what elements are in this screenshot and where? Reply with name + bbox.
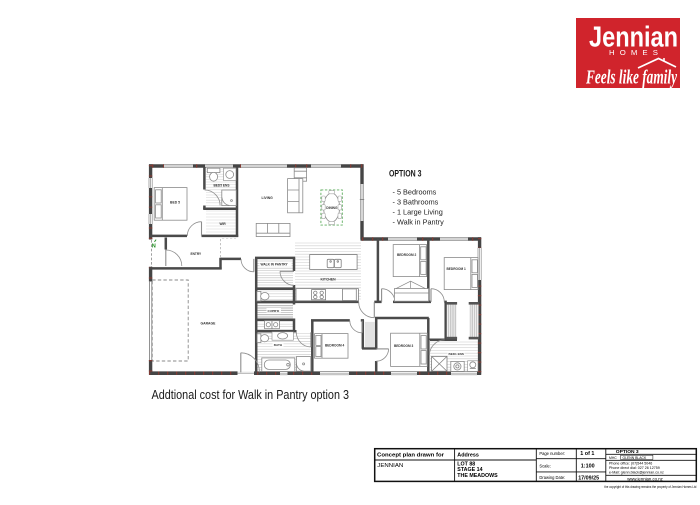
svg-text:- 1 Large Living: - 1 Large Living: [393, 208, 443, 217]
svg-text:www.jennian.co.nz: www.jennian.co.nz: [627, 476, 663, 481]
svg-text:- 5 Bedrooms: - 5 Bedrooms: [393, 188, 437, 197]
svg-text:Feels like family: Feels like family: [585, 67, 677, 89]
svg-text:JENNIAN: JENNIAN: [377, 463, 403, 469]
svg-text:BEDROOM 1: BEDROOM 1: [447, 267, 467, 271]
svg-text:e-Mail: glenn.black@jennian.co: e-Mail: glenn.black@jennian.co.nz: [609, 471, 664, 475]
svg-text:KITCHEN: KITCHEN: [321, 278, 337, 282]
svg-text:BEDROOM 3: BEDROOM 3: [394, 344, 414, 348]
svg-text:the copyright of this drawing: the copyright of this drawing remains th…: [604, 485, 696, 489]
svg-text:17/09/25: 17/09/25: [578, 475, 599, 481]
svg-text:GLENN BLACK: GLENN BLACK: [623, 456, 647, 460]
svg-text:HOMES: HOMES: [609, 50, 663, 57]
svg-text:BEDROOM 2: BEDROOM 2: [397, 253, 417, 257]
svg-text:Scale:: Scale:: [539, 463, 550, 468]
svg-text:Phone direct dial: 027 26 1275: Phone direct dial: 027 26 12759: [609, 466, 660, 470]
svg-text:1:100: 1:100: [581, 463, 595, 469]
svg-text:LIVING: LIVING: [262, 196, 274, 200]
svg-text:- 3 Bathrooms: - 3 Bathrooms: [393, 198, 439, 207]
svg-text:1 of 1: 1 of 1: [580, 451, 594, 457]
svg-text:GARAGE: GARAGE: [201, 322, 217, 326]
svg-text:BED5 ENS: BED5 ENS: [214, 184, 230, 188]
svg-text:Phone office: (07)544 5046: Phone office: (07)544 5046: [609, 461, 652, 465]
svg-text:Concept plan drawn for: Concept plan drawn for: [377, 452, 445, 458]
svg-text:Drawing Date:: Drawing Date:: [539, 475, 565, 480]
svg-text:OPTION 3: OPTION 3: [389, 168, 422, 178]
svg-text:Address: Address: [457, 453, 479, 459]
svg-text:CUPB'D: CUPB'D: [268, 309, 281, 313]
svg-text:Addtional cost for Walk in Pan: Addtional cost for Walk in Pantry option…: [152, 387, 350, 402]
svg-text:WIR: WIR: [220, 222, 227, 226]
svg-text:N: N: [152, 244, 156, 250]
svg-text:BED1 ENS: BED1 ENS: [449, 352, 464, 356]
svg-text:- Walk in Pantry: - Walk in Pantry: [393, 218, 445, 227]
svg-text:BEDROOM 4: BEDROOM 4: [325, 343, 345, 347]
svg-text:ENTRY: ENTRY: [191, 252, 203, 256]
svg-text:Page number:: Page number:: [539, 451, 565, 456]
svg-text:DINING: DINING: [326, 206, 338, 210]
svg-text:MHC: MHC: [609, 456, 617, 460]
svg-text:OPTION 3: OPTION 3: [616, 449, 639, 455]
svg-text:THE MEADOWS: THE MEADOWS: [457, 473, 498, 479]
svg-text:BED 5: BED 5: [170, 201, 180, 205]
svg-text:Jennian: Jennian: [589, 22, 678, 54]
svg-text:WALK IN PANTRY: WALK IN PANTRY: [261, 262, 289, 266]
svg-text:BATH: BATH: [274, 343, 283, 347]
